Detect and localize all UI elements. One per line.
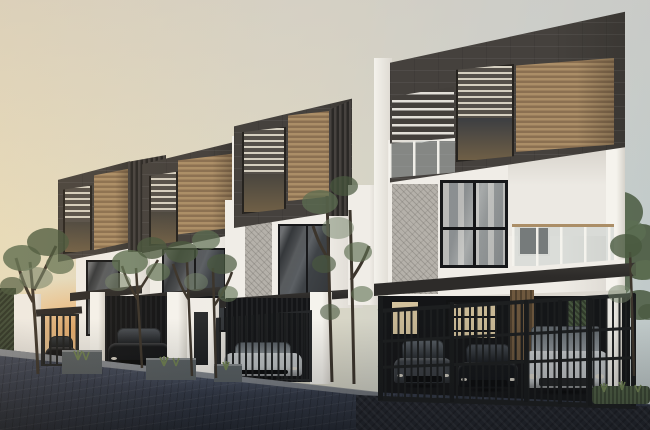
window-mullion [473, 183, 476, 265]
planter-1 [62, 350, 102, 374]
unit4-gate-post-2 [450, 302, 454, 402]
unit4-mid-window [440, 180, 508, 268]
window-transom [443, 227, 505, 230]
unit4-balcony-railing [512, 224, 614, 266]
unit4-gate-post-3 [524, 300, 528, 402]
louvre-slats [458, 66, 512, 118]
townhouse-render-scene: Row of four modern three-storey townhous… [0, 0, 650, 430]
unit4-roof-railing [389, 138, 455, 178]
unit4-louvre-window [456, 64, 514, 162]
louvre-glass [458, 118, 512, 160]
planter-3 [214, 364, 242, 382]
planter-2 [146, 358, 196, 380]
grass-strip-right [592, 386, 650, 404]
unit4-gate-post-1 [378, 296, 383, 400]
unit4-wood-panel [516, 58, 614, 152]
unit4-gate-post-4 [558, 300, 562, 404]
unit4-marble-pier [392, 184, 438, 294]
